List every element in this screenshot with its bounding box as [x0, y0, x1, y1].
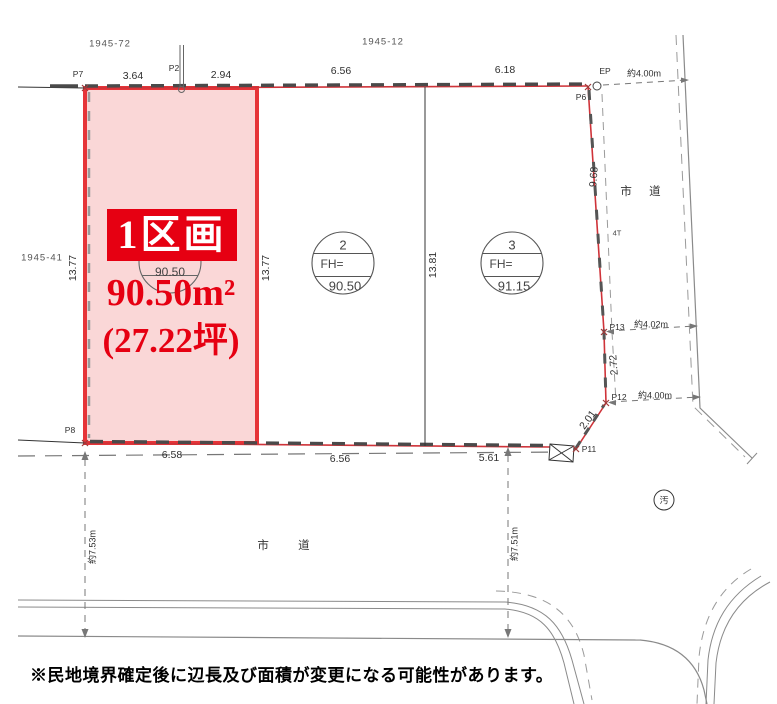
- dim-east-272: 2.72: [607, 354, 620, 375]
- dim-bottom-2: 6.56: [330, 453, 350, 465]
- point-p7: P7: [73, 69, 83, 79]
- dim-east-968: 9.68: [587, 166, 600, 187]
- point-p6: P6: [576, 92, 586, 102]
- parcel-1-area-tsubo: (27.22坪): [41, 312, 301, 363]
- fh2-label: FH=: [320, 257, 343, 271]
- ep-marker: [593, 82, 601, 90]
- parcel-1-area-m2: 90.50m²: [41, 271, 301, 315]
- road-dim-south-left: 約7.53m: [86, 530, 99, 564]
- east-road-right-edge: [683, 35, 752, 458]
- dim-bottom-1: 6.58: [162, 449, 182, 461]
- road-dim-east-mid: 約4.02m: [634, 318, 668, 331]
- dim-top-1: 3.64: [123, 70, 143, 82]
- lot-number-left: 1945-41: [21, 253, 63, 264]
- road-label-east: 市 道: [620, 183, 667, 199]
- dim-line-east-top: [603, 80, 687, 85]
- boundary-top-dashes: [85, 84, 588, 86]
- south-road-curb-2: [18, 607, 505, 609]
- point-p8: P8: [65, 425, 75, 435]
- curb-curve-right-2: [706, 576, 761, 704]
- south-road-south-edge: [18, 636, 640, 640]
- fh2-value: 90.50: [329, 279, 362, 294]
- parcel-1-badge: 1区画: [107, 209, 237, 261]
- south-edge-curve: [640, 640, 707, 704]
- road-label-south: 市 道: [257, 537, 322, 553]
- arrow-down-right: [505, 629, 512, 638]
- fh3-label: FH=: [489, 257, 512, 271]
- point-p2: P2: [169, 63, 179, 73]
- curb-curve-left-1: [505, 602, 584, 704]
- dim-top-2: 2.94: [211, 69, 231, 81]
- road-dim-east-low: 約4.00m: [638, 389, 672, 402]
- curb-curve-right-1: [714, 582, 770, 704]
- manhole-label: 汚: [659, 494, 668, 507]
- lot-number-top-center: 1945-12: [362, 37, 404, 48]
- point-p12: P12: [611, 392, 626, 402]
- dim-div-1381: 13.81: [427, 252, 439, 278]
- point-4t: 4T: [613, 229, 622, 238]
- lot-number-top-left: 1945-72: [89, 39, 131, 50]
- ext-bottom-left: [18, 440, 85, 443]
- point-p11: P11: [582, 444, 597, 454]
- fh3-value: 91.15: [498, 279, 531, 294]
- curb-curve-left-2: [505, 609, 574, 704]
- dim-top-4: 6.18: [495, 64, 515, 76]
- site-plan: 1945-72 1945-12 1945-41 3.64 2.94 6.56 6…: [0, 0, 777, 704]
- parcel3-number: 3: [508, 238, 515, 253]
- road-dim-south-right: 約7.51m: [508, 527, 521, 561]
- disclaimer-note: ※民地境界確定後に辺長及び面積が変更になる可能性があります。: [30, 661, 553, 686]
- boundary-bottom-dashes: [90, 442, 550, 446]
- point-p13: P13: [609, 322, 624, 332]
- south-road-curb-1: [18, 600, 505, 602]
- parcel2-number: 2: [339, 238, 346, 253]
- road-dim-east-top: 約4.00m: [627, 67, 661, 80]
- arrow-up-right: [505, 447, 512, 456]
- point-ep: EP: [599, 66, 610, 76]
- dim-bottom-3: 5.61: [479, 452, 499, 464]
- dim-top-3: 6.56: [331, 65, 351, 77]
